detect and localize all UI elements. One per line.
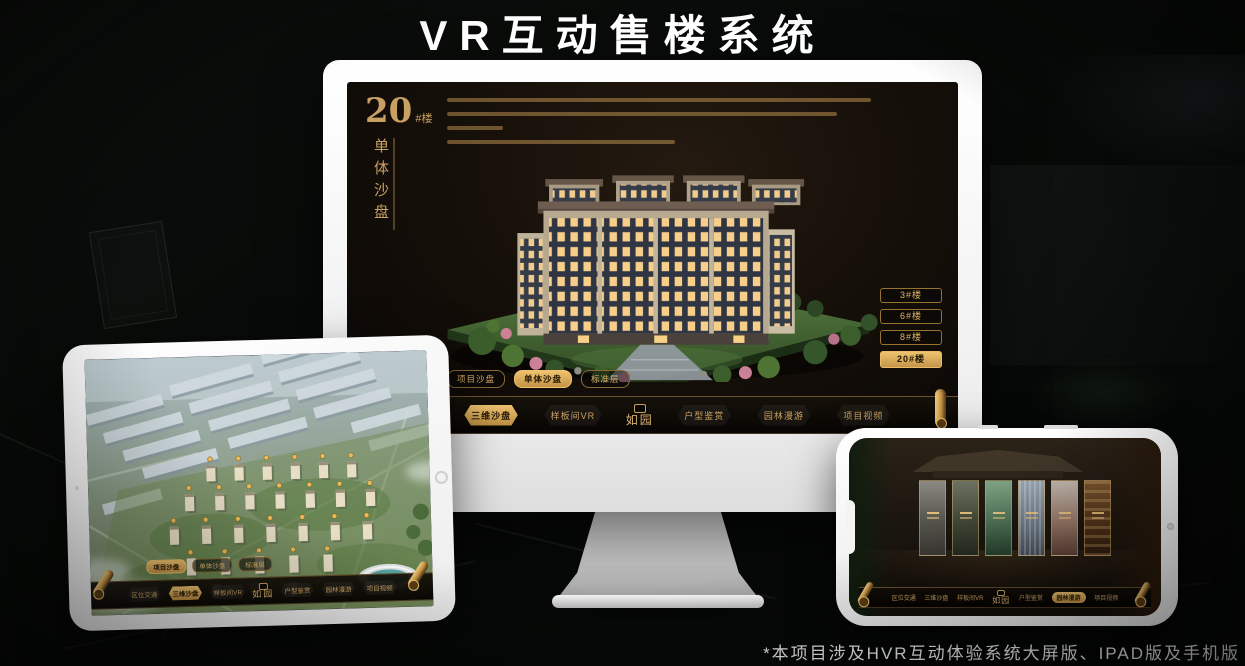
nav-item-garden-roam[interactable]: 园林漫游 xyxy=(320,581,356,596)
brand-logo-text: 如园 xyxy=(626,414,654,426)
card-caption-marks xyxy=(927,512,939,514)
bg-city-photo xyxy=(990,165,1245,365)
building-3d-view[interactable] xyxy=(415,140,899,382)
floor-glow xyxy=(849,550,1161,592)
card-caption-marks xyxy=(1092,512,1104,514)
nav-item-unit-plans[interactable]: 户型鉴赏 xyxy=(675,405,733,426)
floor-button-20[interactable]: 20#楼 xyxy=(880,351,942,368)
pavilion-beam-silhouette xyxy=(933,471,1063,478)
phone-notch xyxy=(846,500,855,554)
card-caption-marks xyxy=(1026,512,1038,514)
section-title-vertical: 单体沙盘 xyxy=(371,138,392,226)
nav-item-3d-sandtable[interactable]: 三维沙盘 xyxy=(924,593,948,602)
tablet-home-button xyxy=(435,471,448,484)
tab-project-sandtable[interactable]: 项目沙盘 xyxy=(447,370,505,388)
nav-item-location-traffic[interactable]: 区位交通 xyxy=(126,587,162,602)
poster-title: VR互动售楼系统 xyxy=(0,2,1245,63)
brand-logo-text: 如园 xyxy=(252,590,274,600)
poster-canvas: 20 #楼 单体沙盘 xyxy=(0,0,1245,666)
nav-item-garden-roam[interactable]: 园林漫游 xyxy=(755,405,813,426)
nav-item-unit-plans[interactable]: 户型鉴赏 xyxy=(279,582,315,597)
gallery-card[interactable] xyxy=(919,480,946,556)
floor-button-3[interactable]: 3#楼 xyxy=(880,288,942,303)
nav-item-showroom-vr[interactable]: 样板间VR xyxy=(208,584,247,599)
floor-button-8[interactable]: 8#楼 xyxy=(880,330,942,345)
nav-item-garden-roam[interactable]: 园林漫游 xyxy=(1052,592,1086,603)
brand-logo: 如园 xyxy=(626,404,654,426)
monitor-base xyxy=(552,595,764,608)
tablet-tab-project-sandtable[interactable]: 项目沙盘 xyxy=(146,559,186,574)
phone-nav-bar: 区位交通 三维沙盘 样板间VR 如园 户型鉴赏 园林漫游 项目视频 xyxy=(859,587,1151,608)
gallery-card[interactable] xyxy=(1084,480,1111,556)
poster-footnote: *本项目涉及HVR互动体验系统大屏版、IPAD版及手机版 xyxy=(763,639,1240,664)
gallery-card[interactable] xyxy=(1018,480,1045,556)
nav-item-3d-sandtable[interactable]: 三维沙盘 xyxy=(167,586,203,601)
bg-plaque-photo xyxy=(89,221,177,329)
card-caption-marks xyxy=(960,512,972,514)
pavilion-roof-silhouette xyxy=(913,450,1083,472)
seal-icon xyxy=(634,404,646,413)
nav-item-location-traffic[interactable]: 区位交通 xyxy=(892,593,916,602)
monitor-stand xyxy=(557,511,759,599)
brand-logo-text: 如园 xyxy=(992,597,1010,605)
floor-button-group: 3#楼 6#楼 8#楼 20#楼 xyxy=(880,288,942,368)
panorama-gallery xyxy=(919,480,1111,556)
sandtable-tab-group: 项目沙盘 单体沙盘 标准层 xyxy=(447,370,630,388)
gallery-card[interactable] xyxy=(985,480,1012,556)
nav-item-showroom-vr[interactable]: 样板间VR xyxy=(542,405,605,426)
gallery-card[interactable] xyxy=(952,480,979,556)
nav-item-project-video[interactable]: 项目视频 xyxy=(362,580,398,595)
tablet-tab-standard-floor[interactable]: 标准层 xyxy=(238,557,272,572)
phone-power-button xyxy=(1044,425,1078,429)
phone-screen: 区位交通 三维沙盘 样板间VR 如园 户型鉴赏 园林漫游 项目视频 xyxy=(849,438,1161,616)
card-caption-marks xyxy=(993,512,1005,514)
building-number-suffix: #楼 xyxy=(415,110,432,126)
tablet-camera xyxy=(75,486,79,490)
gallery-card[interactable] xyxy=(1051,480,1078,556)
nav-item-3d-sandtable[interactable]: 三维沙盘 xyxy=(462,405,520,426)
tab-standard-floor[interactable]: 标准层 xyxy=(581,370,630,388)
building-render-illustration xyxy=(415,140,899,382)
nav-item-project-video[interactable]: 项目视频 xyxy=(1094,593,1118,602)
card-caption-marks xyxy=(1059,512,1071,514)
nav-item-project-video[interactable]: 项目视频 xyxy=(834,405,892,426)
phone-volume-button xyxy=(978,425,998,429)
tablet-device: 项目沙盘 单体沙盘 标准层 区位交通 三维沙盘 样板间VR 如园 户型鉴赏 园林… xyxy=(62,335,456,632)
building-number: 20 xyxy=(365,94,412,128)
bg-river xyxy=(1035,55,1245,185)
bg-trees xyxy=(1020,355,1190,430)
decorative-vertical-rule xyxy=(393,138,395,230)
tablet-tab-single-building-sandtable[interactable]: 单体沙盘 xyxy=(192,558,232,573)
seal-icon xyxy=(258,582,267,589)
scroll-menu-icon[interactable] xyxy=(935,389,946,427)
nav-item-unit-plans[interactable]: 户型鉴赏 xyxy=(1019,593,1043,602)
floor-button-6[interactable]: 6#楼 xyxy=(880,309,942,324)
tab-single-building-sandtable[interactable]: 单体沙盘 xyxy=(514,370,572,388)
phone-camera xyxy=(1167,523,1174,530)
nav-item-showroom-vr[interactable]: 样板间VR xyxy=(957,593,983,602)
brand-logo: 如园 xyxy=(992,590,1010,605)
tablet-screen: 项目沙盘 单体沙盘 标准层 区位交通 三维沙盘 样板间VR 如园 户型鉴赏 园林… xyxy=(84,350,433,615)
brand-logo: 如园 xyxy=(252,582,274,600)
phone-device: 区位交通 三维沙盘 样板间VR 如园 户型鉴赏 园林漫游 项目视频 xyxy=(836,428,1178,626)
